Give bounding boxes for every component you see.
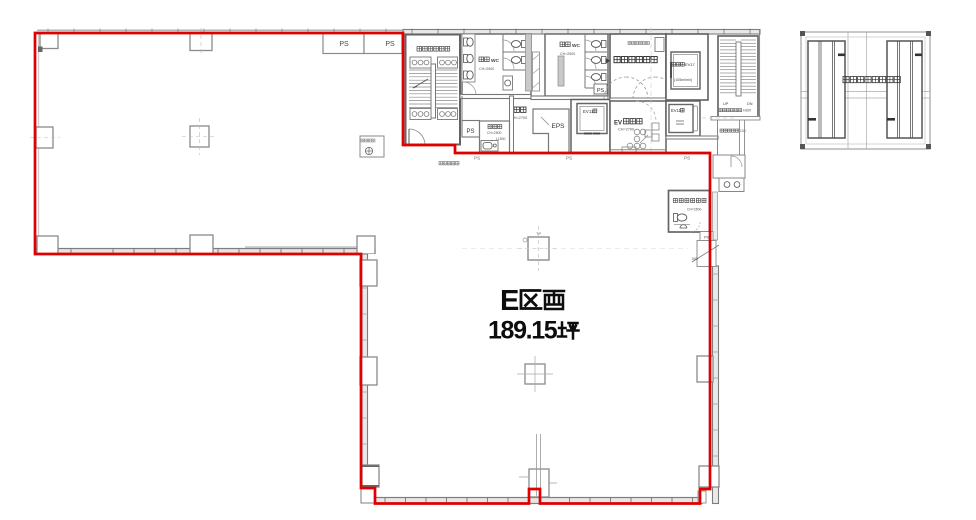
svg-text:EV11: EV11 (583, 109, 594, 114)
svg-text:PS: PS (385, 41, 395, 48)
svg-text:UP: UP (723, 102, 729, 106)
svg-text:WC: WC (491, 58, 500, 64)
svg-text:EV17: EV17 (685, 62, 696, 67)
svg-text:TP: TP (536, 231, 541, 236)
svg-text:CH=2500: CH=2500 (560, 52, 575, 56)
svg-text:13X: 13X (740, 129, 747, 133)
svg-text:CH=2700: CH=2700 (618, 128, 634, 132)
svg-text:EPS: EPS (551, 123, 565, 130)
svg-text:PS: PS (474, 156, 480, 161)
svg-text:(105m/min): (105m/min) (674, 78, 692, 82)
svg-text:CH=2500: CH=2500 (479, 67, 494, 71)
svg-text:EV: EV (614, 121, 622, 127)
svg-text:PS: PS (466, 129, 474, 135)
svg-text:PS: PS (339, 41, 349, 48)
svg-text:E: E (500, 285, 519, 317)
svg-text:EV11: EV11 (671, 108, 682, 113)
svg-text:DN: DN (747, 102, 753, 106)
svg-text:WC: WC (572, 43, 581, 49)
svg-text:H300: H300 (743, 109, 751, 113)
svg-text:189.15: 189.15 (488, 317, 558, 345)
svg-text:500: 500 (692, 257, 698, 261)
svg-text:PS: PS (597, 88, 605, 94)
svg-text:CH=2500: CH=2500 (487, 131, 502, 135)
svg-text:PS: PS (566, 156, 572, 161)
svg-text:PS: PS (684, 156, 690, 161)
svg-text:CH=2500: CH=2500 (687, 208, 702, 212)
